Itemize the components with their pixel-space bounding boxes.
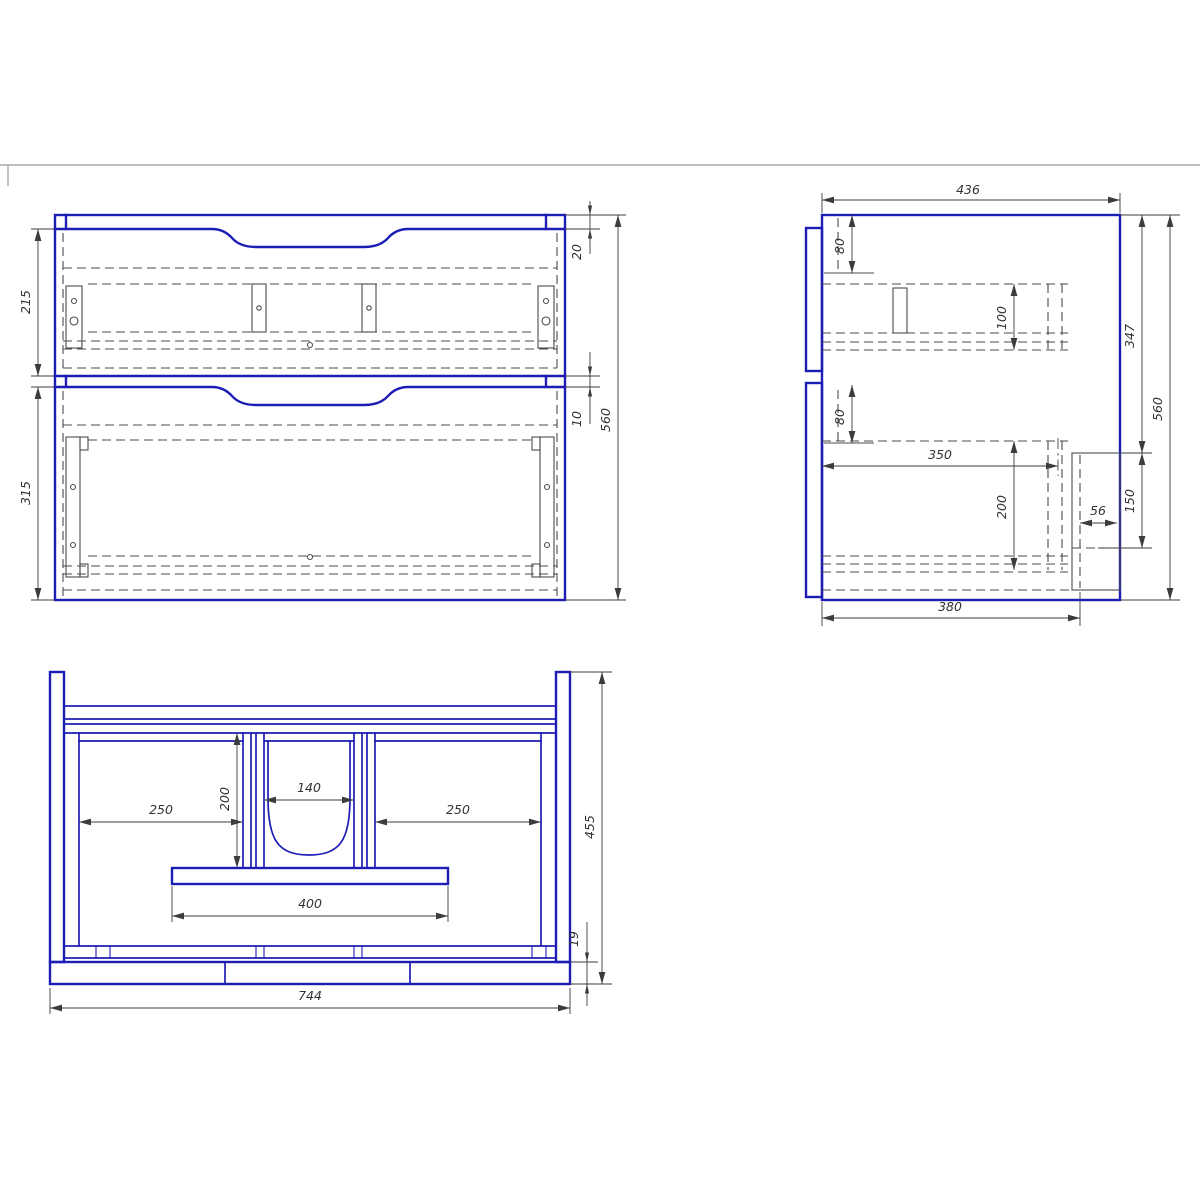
front-view-drawer2-internals [63, 391, 557, 596]
dim-bv-plate-width: 400 [298, 896, 322, 911]
bottom-view-outline [50, 672, 570, 984]
wall-bracket [1072, 453, 1120, 590]
dim-bv-total-depth: 455 [582, 815, 597, 839]
sink-drain-cutout [268, 741, 350, 855]
mounting-plate [172, 868, 448, 884]
dim-sv-bracket-height: 150 [1122, 489, 1137, 513]
front-view: 215 315 20 10 560 [18, 201, 626, 600]
dim-fv-top-panel: 20 [569, 244, 584, 260]
dim-bv-center-opening: 140 [297, 780, 321, 795]
bottom-plank [50, 962, 570, 984]
dim-sv-upper-section: 347 [1122, 324, 1137, 348]
dim-sv-upper-offset: 80 [832, 238, 847, 254]
dim-bv-left-bay: 250 [149, 802, 173, 817]
side-view-internals [822, 218, 1120, 590]
cad-drawing: 215 315 20 10 560 [0, 0, 1200, 1200]
dim-bv-bottom-thickness: 19 [566, 931, 581, 947]
dim-bv-total-width: 744 [298, 988, 322, 1003]
front-view-dimensions: 215 315 20 10 560 [18, 201, 626, 600]
front-view-outline [55, 215, 565, 600]
dim-fv-total-height: 560 [598, 408, 613, 432]
dim-sv-runner-depth: 350 [928, 447, 952, 462]
dim-sv-total-height: 560 [1150, 397, 1165, 421]
dim-bv-center-depth: 200 [217, 787, 232, 811]
dim-sv-bottom-depth: 380 [938, 599, 962, 614]
dim-fv-gap: 10 [569, 411, 584, 427]
dim-sv-lower-rail-height: 200 [994, 495, 1009, 519]
dim-sv-bracket-inset: 56 [1090, 503, 1106, 518]
drawing-sheet: 215 315 20 10 560 [0, 0, 1200, 1200]
bottom-view: 250 200 140 250 400 744 455 19 [50, 672, 612, 1014]
dim-sv-rail-height: 100 [994, 306, 1009, 330]
dim-bv-right-bay: 250 [446, 802, 470, 817]
dim-fv-drawer1-height: 215 [18, 290, 33, 314]
dim-sv-depth: 436 [956, 182, 980, 197]
dim-sv-lower-offset: 80 [832, 409, 847, 425]
side-view-dimensions: 436 80 100 80 350 200 56 347 150 560 [822, 182, 1180, 626]
sheet-frame [0, 165, 1200, 186]
dim-fv-drawer2-height: 315 [18, 481, 33, 505]
front-view-drawer1-internals [63, 233, 557, 372]
side-view: 436 80 100 80 350 200 56 347 150 560 [806, 182, 1180, 626]
